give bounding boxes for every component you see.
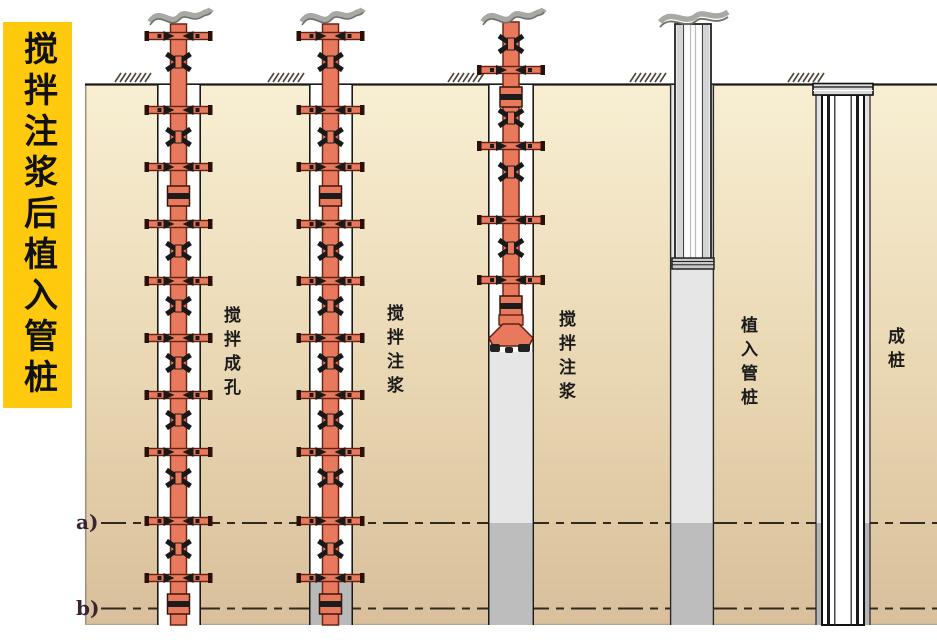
break-symbol <box>150 9 211 25</box>
depth-marker-b: b) <box>76 598 99 618</box>
ground-hatch <box>630 73 666 82</box>
pile-stage-5-finished <box>813 84 873 626</box>
ground-hatch <box>788 73 824 82</box>
depth-marker-a: a) <box>76 512 98 532</box>
pile-construction-diagram: 搅拌注浆后植入管桩 搅拌成孔 搅拌注浆 搅拌注浆 植入管桩 成桩 a) b) <box>0 0 937 640</box>
pile-top-cap <box>813 84 873 96</box>
diagram-graphics <box>0 0 937 640</box>
stage-label-pipe-insertion: 植入管桩 <box>738 316 755 412</box>
grout-column-dark <box>671 523 713 625</box>
grout-column-light <box>490 352 533 523</box>
process-title-banner: 搅拌注浆后植入管桩 <box>3 22 72 408</box>
pipe-pile-shoe <box>672 258 714 269</box>
stage-label-mix-grouting-1: 搅拌注浆 <box>384 304 401 400</box>
ground-hatch <box>268 73 304 82</box>
ground-hatch <box>115 73 151 82</box>
stage-label-finished-pile: 成桩 <box>885 327 902 375</box>
stage-label-hole-forming: 搅拌成孔 <box>221 306 238 402</box>
break-symbol <box>302 9 363 25</box>
grout-column-dark <box>490 523 533 625</box>
stage-label-mix-grouting-2: 搅拌注浆 <box>556 310 573 406</box>
